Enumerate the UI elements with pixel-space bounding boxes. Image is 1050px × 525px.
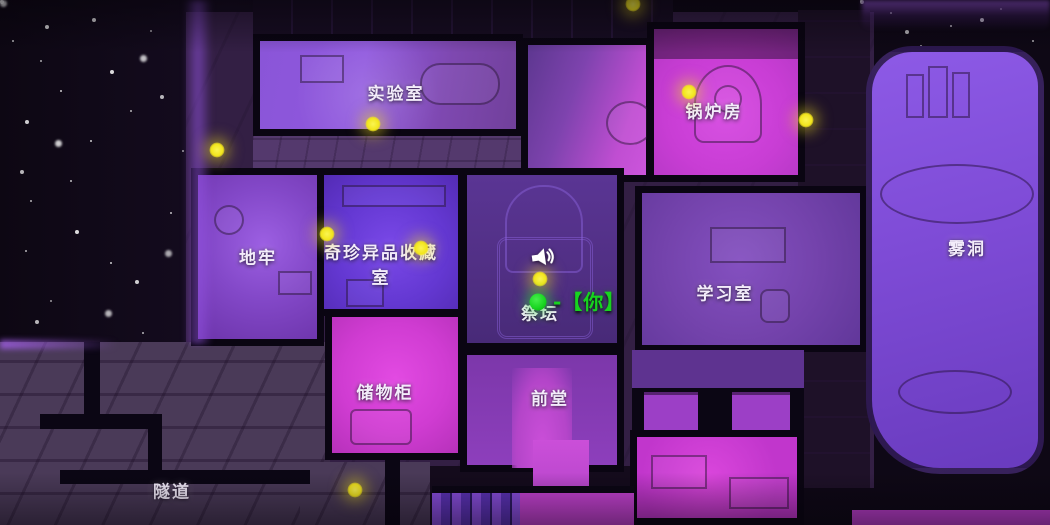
room-label-fog-cave: 雾洞 <box>948 238 986 263</box>
light-orb <box>366 117 381 132</box>
room-bedroom <box>630 430 804 525</box>
bed-alcoves <box>632 388 804 434</box>
light-orb <box>320 227 335 242</box>
light-orb <box>348 483 363 498</box>
light-orb <box>210 143 225 158</box>
wall-glow <box>862 0 1050 30</box>
wall <box>84 342 100 414</box>
dim-upper-area <box>253 0 673 38</box>
room-study <box>635 186 867 352</box>
bed-sketch <box>651 455 707 489</box>
player-marker <box>530 294 547 311</box>
room-label-study: 学习室 <box>697 283 754 308</box>
room-label-dungeon: 地牢 <box>239 247 277 272</box>
cave-sketch <box>906 74 924 118</box>
light-orb <box>799 113 814 128</box>
light-orb <box>414 241 429 256</box>
speaker-icon <box>528 243 557 270</box>
room-label-front-hall: 前堂 <box>531 388 569 413</box>
bottom-right-room <box>852 510 1050 525</box>
wall-glow <box>184 0 212 344</box>
room-label-storage: 储物柜 <box>357 382 414 407</box>
wall-glow <box>0 340 118 349</box>
locker-stripes <box>432 486 520 525</box>
chair-sketch <box>760 289 790 323</box>
game-map-screen: 实验室 锅炉房 地牢 奇珍异品收藏室 祭坛 学习室 雾洞 储物柜 前堂 隧道 -… <box>0 0 1050 525</box>
bed-sketch <box>729 477 789 509</box>
barrel-sketch <box>214 205 244 235</box>
wall <box>148 423 162 470</box>
room-label-laboratory: 实验室 <box>368 83 425 108</box>
cave-sketch <box>880 164 1034 224</box>
wall <box>40 414 162 429</box>
cave-sketch <box>952 72 970 118</box>
wall <box>385 455 400 525</box>
bottom-magenta-room <box>520 486 634 525</box>
room-kitchen-nook <box>521 38 653 182</box>
light-orb <box>682 85 697 100</box>
bed-sketch <box>350 409 412 445</box>
furniture-sketch <box>300 55 344 83</box>
player-you-label: -【你】 <box>553 286 625 315</box>
room-label-tunnel: 隧道 <box>153 481 191 506</box>
shadow-overlay <box>654 29 798 59</box>
furniture-sketch <box>278 271 312 295</box>
bed-nook <box>644 392 698 435</box>
cave-sketch <box>898 370 1012 414</box>
furniture-sketch <box>420 63 500 105</box>
shelf-sketch <box>342 185 446 207</box>
cave-sketch <box>928 66 948 118</box>
light-orb <box>533 272 548 287</box>
bed-nook <box>732 392 790 435</box>
bedroom-upper-area <box>632 350 804 390</box>
desk-sketch <box>710 227 786 263</box>
room-label-boiler: 锅炉房 <box>686 101 743 126</box>
snow-particles <box>0 0 7 7</box>
room-tunnel <box>300 462 430 525</box>
